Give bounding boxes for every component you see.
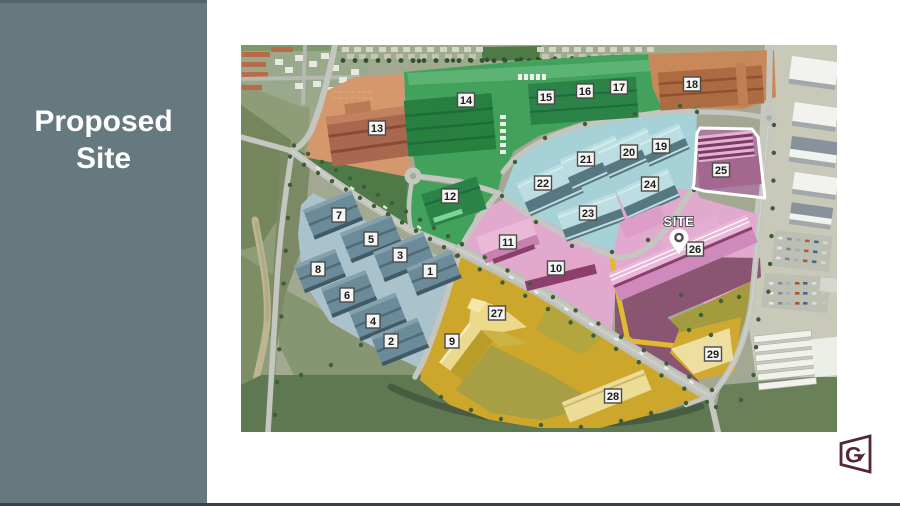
svg-text:23: 23 [582,208,594,220]
svg-text:16: 16 [579,86,591,98]
svg-text:29: 29 [707,349,719,361]
svg-text:1: 1 [427,266,433,278]
svg-text:15: 15 [540,92,552,104]
svg-text:27: 27 [491,308,503,320]
svg-text:18: 18 [686,79,698,91]
svg-text:12: 12 [444,191,456,203]
svg-text:14: 14 [460,95,473,107]
svg-text:8: 8 [315,264,321,276]
svg-text:22: 22 [537,178,549,190]
svg-text:6: 6 [344,290,350,302]
svg-text:28: 28 [607,391,619,403]
svg-text:24: 24 [644,179,657,191]
svg-text:19: 19 [655,141,667,153]
svg-text:G: G [845,443,862,468]
svg-text:17: 17 [613,82,625,94]
svg-text:11: 11 [502,237,514,249]
svg-text:25: 25 [715,165,727,177]
svg-text:9: 9 [449,336,455,348]
svg-text:4: 4 [370,316,377,328]
svg-text:10: 10 [550,263,562,275]
svg-text:7: 7 [336,210,342,222]
svg-text:5: 5 [368,234,374,246]
svg-text:SITE: SITE [664,214,695,229]
svg-text:26: 26 [689,244,701,256]
svg-text:21: 21 [580,154,592,166]
svg-text:13: 13 [371,123,383,135]
svg-text:20: 20 [623,147,635,159]
svg-text:2: 2 [388,336,394,348]
svg-text:3: 3 [397,250,403,262]
